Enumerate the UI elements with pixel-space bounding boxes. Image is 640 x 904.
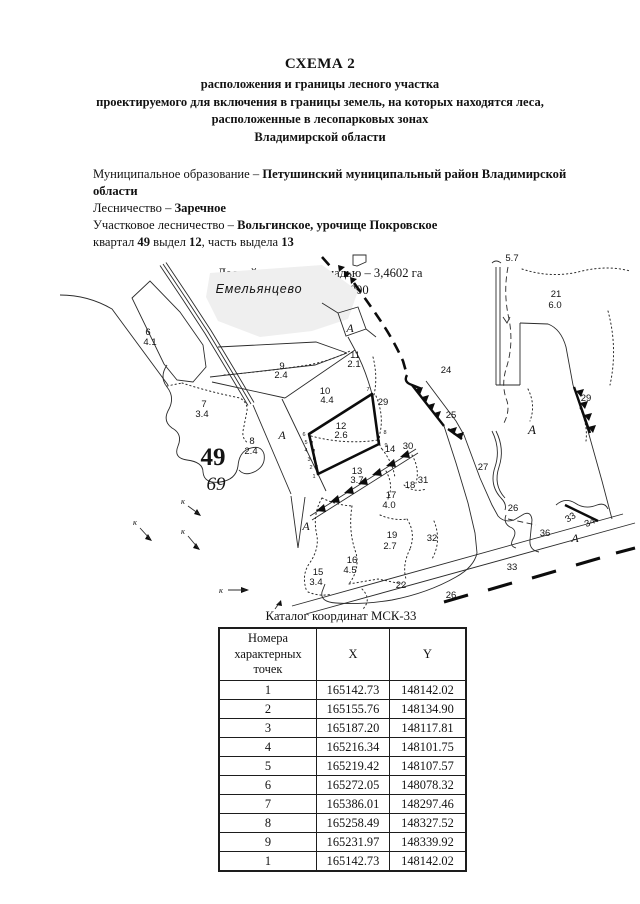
coord-cell: 148297.46 [390,795,467,814]
map-label: 19 [387,530,398,541]
map-label: 2.1 [347,359,360,370]
k-arrows [140,506,280,609]
table-row: 6165272.05148078.32 [219,776,466,795]
map-label: 22 [396,580,407,591]
coord-cell: 9 [219,833,317,852]
info-block: Муниципальное образование – Петушинский … [93,166,598,251]
map-label: 5 [304,440,307,446]
subtitle-line: расположения и границы лесного участка [0,76,640,94]
document-page: СХЕМА 2 расположения и границы лесного у… [0,0,640,904]
coord-cell: 148339.92 [390,833,467,852]
coord-cell: 165272.05 [317,776,390,795]
coord-cell: 165142.73 [317,852,390,872]
coord-cell: 165386.01 [317,795,390,814]
table-row: 4165216.34148101.75 [219,738,466,757]
coord-cell: 165187.20 [317,719,390,738]
village-area-fill [206,265,358,337]
stream-dashed-lines [504,267,536,525]
map-label: 4.5 [343,565,356,576]
map-label: 2 [309,465,312,471]
map-label: 21 [551,289,562,300]
coord-cell: 165216.34 [317,738,390,757]
coord-cell: 148101.75 [390,738,467,757]
map-label: к [219,585,224,595]
forest-map: Емельянцево5.7216.064.173.492.4104.4112.… [60,253,640,615]
table-row: 5165219.42148107.57 [219,757,466,776]
coord-cell: 165219.42 [317,757,390,776]
map-label: 26 [508,503,519,514]
map-label: 34 [583,516,597,530]
map-label: 3.7 [350,475,363,486]
coord-cell: 165231.97 [317,833,390,852]
map-label: 33 [507,562,518,573]
map-label: 18 [405,480,416,491]
map-label: 9 [384,443,387,449]
coord-cell: 5 [219,757,317,776]
map-label: 31 [418,475,429,486]
map-label: к [181,496,186,506]
map-label: 29 [378,397,389,408]
map-label: 3.4 [309,577,322,588]
map-label: 25 [446,410,457,421]
map-label: 27 [478,462,489,473]
map-label: 24 [441,365,452,376]
quarter-line: квартал 49 выдел 12, часть выдела 13 [93,235,294,249]
col-header-y: Y [390,628,467,681]
map-label: 30 [403,441,414,452]
coord-cell: 4 [219,738,317,757]
forestry-value: Заречное [175,201,226,215]
district-label: Участковое лесничество – [93,218,237,232]
map-label: к [181,526,186,536]
map-label: 4.4 [320,395,333,406]
map-label: 2.6 [334,430,347,441]
forestry-label: Лесничество – [93,201,175,215]
map-label: А [277,428,286,442]
subtitle-line: Владимирской области [0,129,640,147]
coord-cell: 148078.32 [390,776,467,795]
table-row: 9165231.97148339.92 [219,833,466,852]
district-value: Вольгинское, урочище Покровское [237,218,437,232]
coord-cell: 1 [219,681,317,700]
map-label: А [527,422,536,437]
coord-cell: 7 [219,795,317,814]
map-label: 3.4 [195,409,208,420]
coord-cell: 1 [219,852,317,872]
coord-cell: 148117.81 [390,719,467,738]
col-header-x: X [317,628,390,681]
coord-cell: 148142.02 [390,852,467,872]
subtitle-line: проектируемого для включения в границы з… [0,94,640,112]
coord-cell: 148107.57 [390,757,467,776]
map-label: 49 [201,444,226,471]
page-title: СХЕМА 2 [0,56,640,73]
map-label: 33 [563,510,578,525]
map-label: 69 [207,474,227,495]
map-label: 3 [307,457,310,463]
table-row: 3165187.20148117.81 [219,719,466,738]
coord-cell: 148327.52 [390,814,467,833]
map-labels: Емельянцево5.7216.064.173.492.4104.4112.… [133,253,597,601]
map-label: Емельянцево [216,282,303,296]
table-row: 2165155.76148134.90 [219,700,466,719]
map-label: 4.1 [143,337,156,348]
map-label: 4.0 [382,500,395,511]
table-row: 7165386.01148297.46 [219,795,466,814]
coord-cell: 165155.76 [317,700,390,719]
table-row: 1165142.73148142.02 [219,852,466,872]
coords-tbody: 1165142.73148142.022165155.76148134.9031… [219,681,466,872]
map-label: 4 [304,448,307,454]
map-label: 29 [581,393,592,404]
coords-table-title: Каталог координат МСК-33 [218,609,464,624]
map-label: А [345,321,354,335]
coords-table: Номера характерных точек X Y 1165142.731… [218,627,467,872]
coord-cell: 3 [219,719,317,738]
document-header: СХЕМА 2 расположения и границы лесного у… [0,0,640,146]
map-label: 5.7 [505,253,518,264]
map-label: А [570,531,579,545]
coord-cell: 8 [219,814,317,833]
coord-cell: 148142.02 [390,681,467,700]
coord-cell: 2 [219,700,317,719]
map-label: 6.0 [548,300,561,311]
coord-cell: 148134.90 [390,700,467,719]
map-label: к [133,517,138,527]
map-label: 32 [427,533,438,544]
coord-cell: 6 [219,776,317,795]
subtitle-line: расположенные в лесопарковых зонах [0,111,640,129]
coord-cell: 165142.73 [317,681,390,700]
map-label: 6 [302,432,305,438]
map-label: 8 [383,430,386,436]
coord-cell: 165258.49 [317,814,390,833]
map-label: 2.7 [383,541,396,552]
map-label: 2.4 [244,446,257,457]
map-label: 26 [446,590,457,601]
map-label: А [301,519,310,533]
map-label: 2.4 [274,370,287,381]
map-label: 7 [366,387,369,393]
table-row: 8165258.49148327.52 [219,814,466,833]
table-row: 1165142.73148142.02 [219,681,466,700]
col-header-point-numbers: Номера характерных точек [219,628,317,681]
map-label: 1 [312,474,315,480]
table-header-row: Номера характерных точек X Y [219,628,466,681]
municipal-label: Муниципальное образование – [93,167,262,181]
map-label: 36 [540,528,551,539]
